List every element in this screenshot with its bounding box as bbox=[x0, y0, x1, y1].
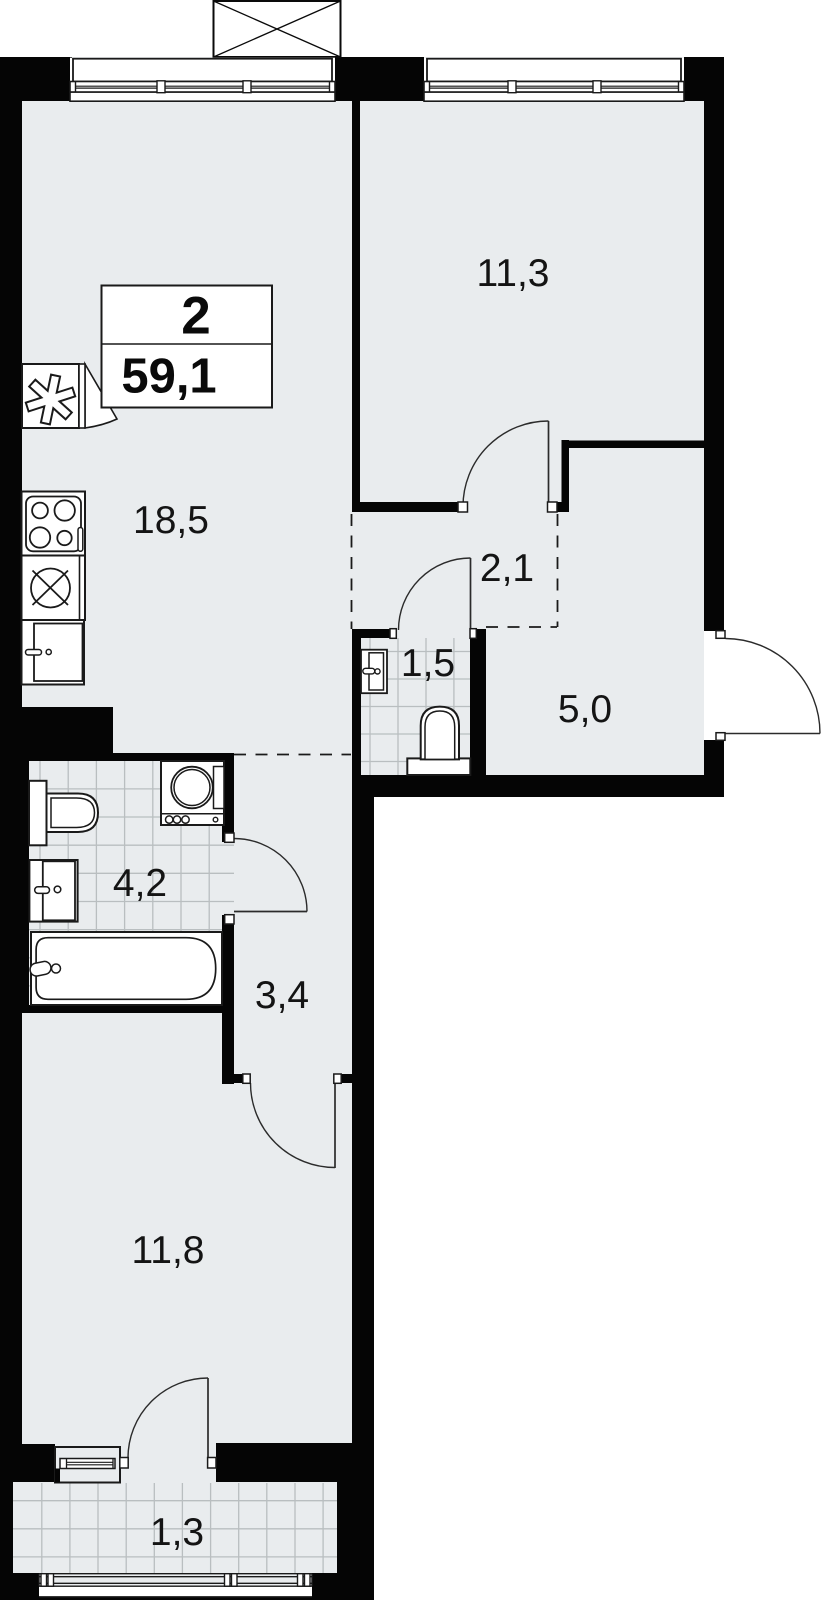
svg-text:11,8: 11,8 bbox=[131, 1229, 204, 1272]
svg-text:11,3: 11,3 bbox=[476, 252, 549, 295]
svg-text:2: 2 bbox=[181, 287, 210, 346]
svg-text:5,0: 5,0 bbox=[558, 688, 612, 731]
svg-text:1,3: 1,3 bbox=[150, 1511, 204, 1554]
svg-text:1,5: 1,5 bbox=[401, 642, 455, 685]
svg-text:2,1: 2,1 bbox=[480, 547, 534, 590]
svg-text:18,5: 18,5 bbox=[133, 499, 209, 542]
svg-text:4,2: 4,2 bbox=[113, 862, 167, 905]
svg-text:3,4: 3,4 bbox=[255, 974, 309, 1017]
svg-text:59,1: 59,1 bbox=[121, 350, 216, 404]
